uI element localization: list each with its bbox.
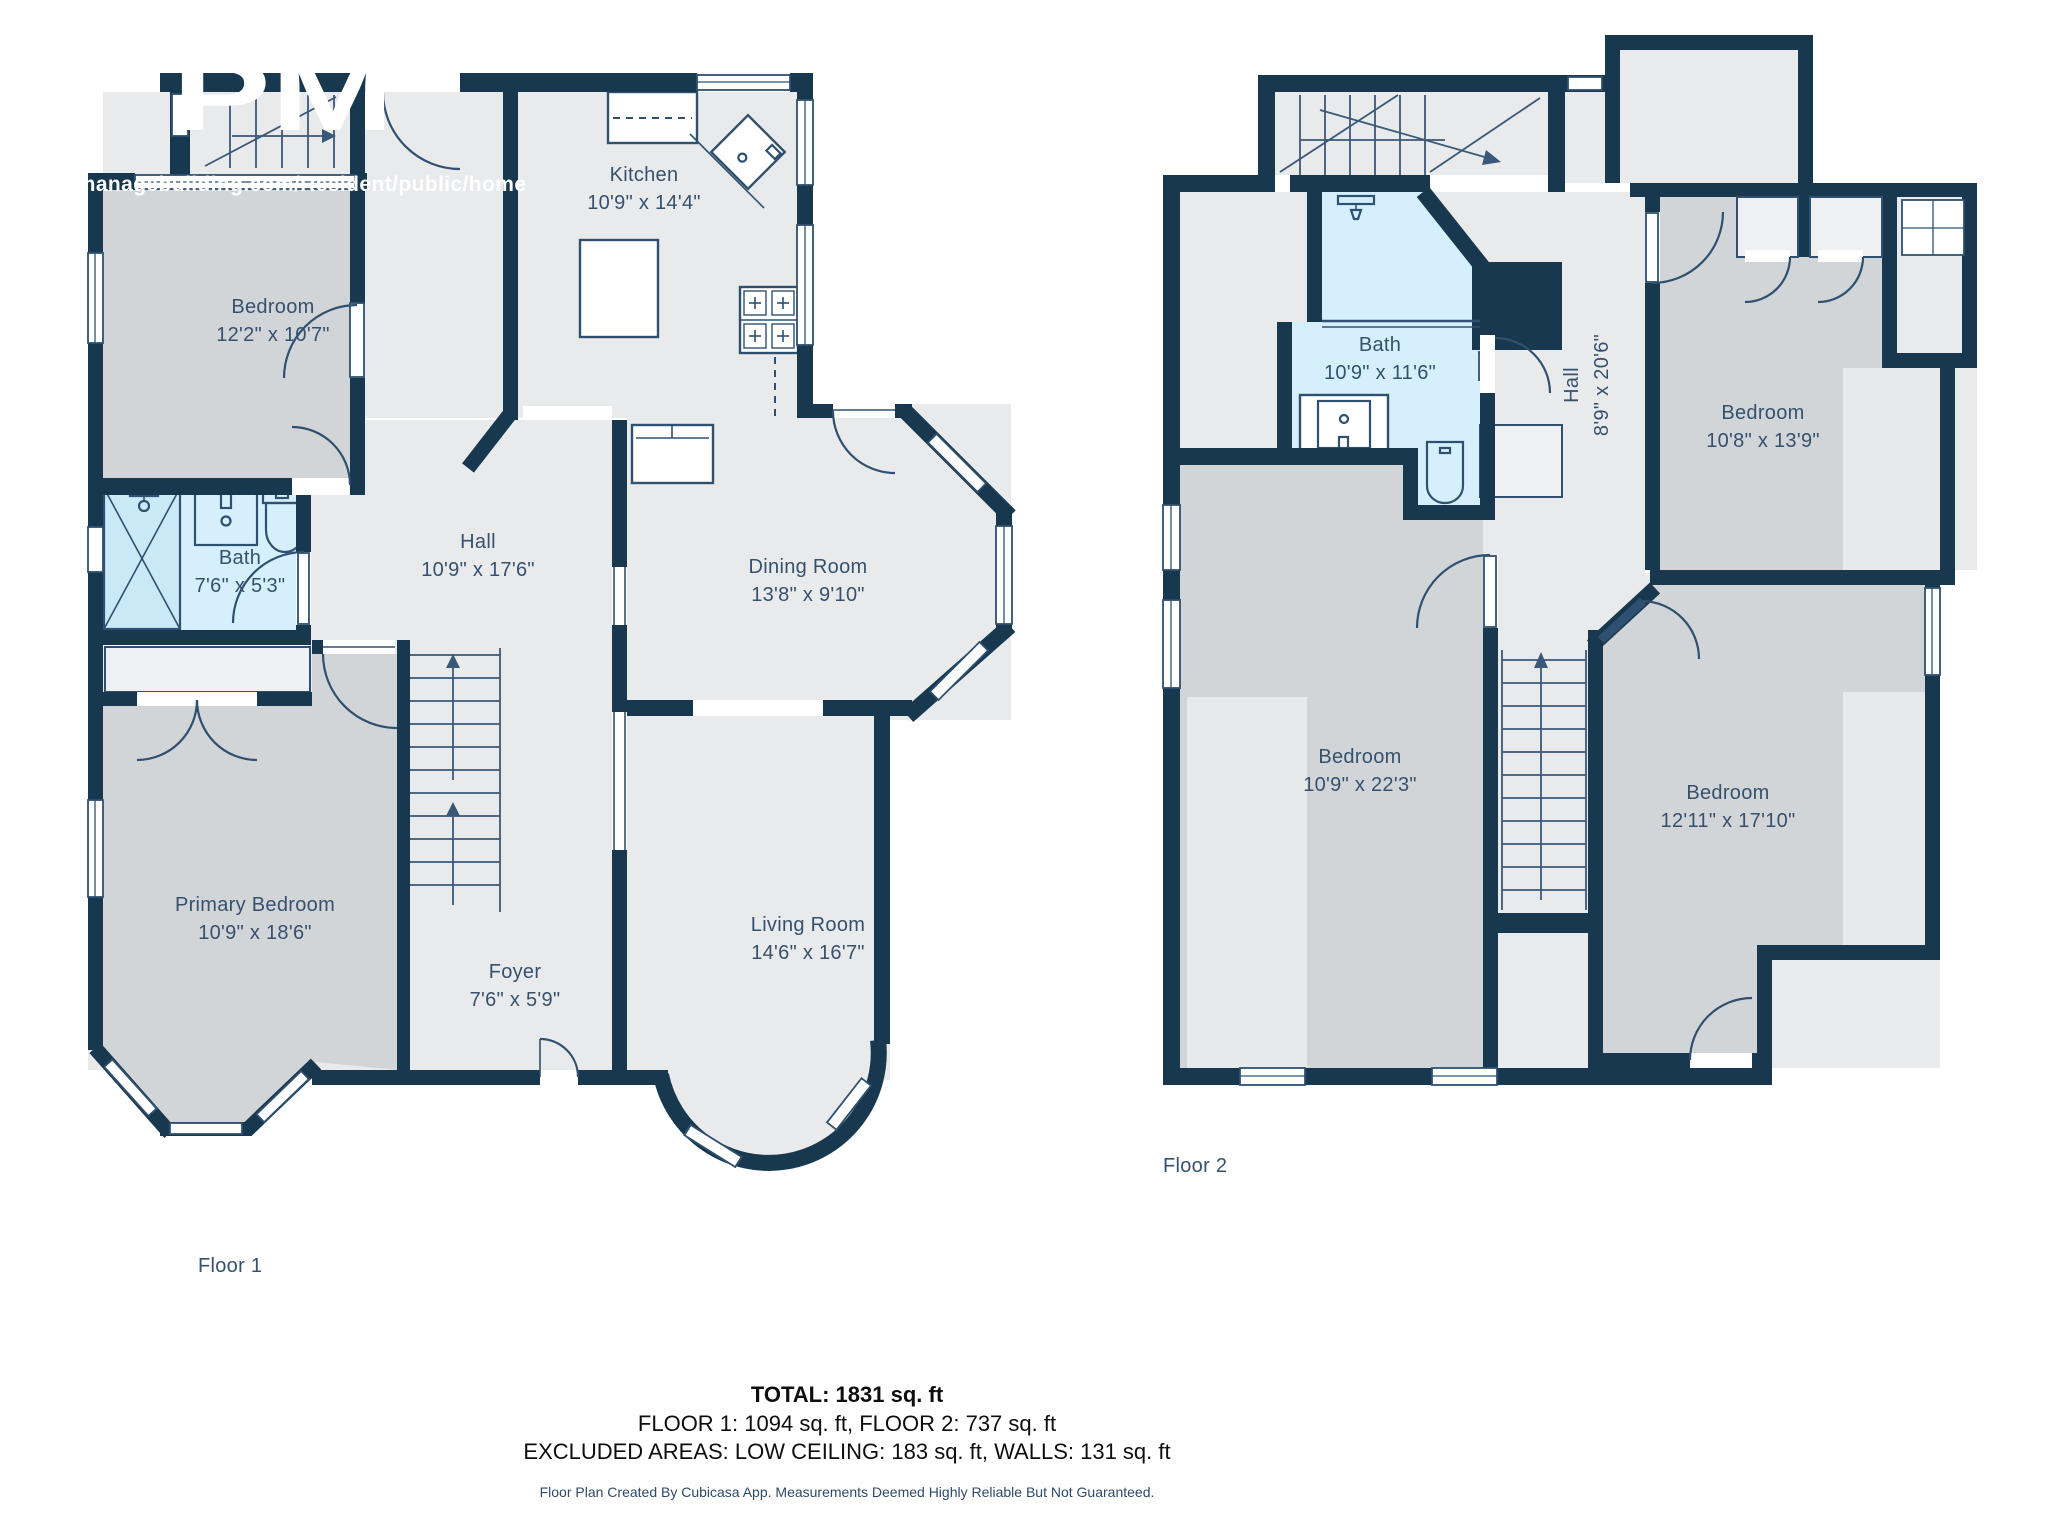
floor2-plan: Bath 10'9" x 11'6" Hall 8'9" x 20'6" Bed… xyxy=(1163,35,1977,1177)
floor1-label: Floor 1 xyxy=(198,1255,262,1277)
floor1-plan: Kitchen 10'9" x 14'4" Bedroom 12'2" x 10… xyxy=(88,73,1012,1277)
room-label-foyer: Foyer xyxy=(489,961,542,983)
room-label-hall2: Hall xyxy=(1561,367,1583,403)
room-label-bath2: Bath xyxy=(1359,334,1401,356)
stove-icon xyxy=(740,287,798,353)
room-label-kitchen: Kitchen xyxy=(610,164,679,186)
room-dims-living: 14'6" x 16'7" xyxy=(751,942,865,964)
room-dims-kitchen: 10'9" x 14'4" xyxy=(587,192,701,214)
room-label-bedroom: Bedroom xyxy=(231,296,314,318)
room-dims-bedroom: 12'2" x 10'7" xyxy=(216,324,330,346)
room-label-living: Living Room xyxy=(751,914,865,936)
watermark-url: perty-managebuilding.com/Resident/public… xyxy=(16,173,526,196)
room-dims-bedroom-br: 12'11" x 17'10" xyxy=(1661,810,1796,832)
room-label-bedroom-br: Bedroom xyxy=(1686,782,1769,804)
floorplan-page: Kitchen 10'9" x 14'4" Bedroom 12'2" x 10… xyxy=(0,0,2048,1536)
room-dims-bath: 7'6" x 5'3" xyxy=(195,575,286,597)
closet-floor1 xyxy=(105,647,310,692)
summary-total: TOTAL: 1831 sq. ft xyxy=(751,1382,944,1407)
kitchen-island xyxy=(580,240,658,337)
watermark-logo: PM xyxy=(172,40,394,152)
room-dims-hall: 10'9" x 17'6" xyxy=(421,559,535,581)
room-label-bath: Bath xyxy=(219,547,261,569)
room-label-primary: Primary Bedroom xyxy=(175,894,335,916)
kitchen-cabinet xyxy=(608,92,697,143)
summary-block: TOTAL: 1831 sq. ft FLOOR 1: 1094 sq. ft,… xyxy=(523,1382,1170,1500)
room-label-bedroom-left: Bedroom xyxy=(1318,746,1401,768)
summary-excluded: EXCLUDED AREAS: LOW CEILING: 183 sq. ft,… xyxy=(523,1439,1170,1464)
room-dims-hall2: 8'9" x 20'6" xyxy=(1591,334,1613,436)
room-dims-bedroom-left: 10'9" x 22'3" xyxy=(1303,774,1417,796)
room-dims-dining: 13'8" x 9'10" xyxy=(751,584,865,606)
room-label-hall: Hall xyxy=(460,531,496,553)
room-dims-primary: 10'9" x 18'6" xyxy=(198,922,312,944)
sink-icon-floor2 xyxy=(1300,395,1388,452)
fridge-icon xyxy=(632,425,713,483)
floor2-label: Floor 2 xyxy=(1163,1155,1227,1177)
room-label-dining: Dining Room xyxy=(749,556,868,578)
floor-plan-canvas: Kitchen 10'9" x 14'4" Bedroom 12'2" x 10… xyxy=(0,0,2048,1536)
room-dims-foyer: 7'6" x 5'9" xyxy=(470,989,561,1011)
window-box-right xyxy=(1902,200,1964,255)
summary-disclaimer: Floor Plan Created By Cubicasa App. Meas… xyxy=(540,1484,1155,1500)
summary-floors: FLOOR 1: 1094 sq. ft, FLOOR 2: 737 sq. f… xyxy=(638,1411,1056,1436)
room-dims-bath2: 10'9" x 11'6" xyxy=(1324,362,1436,384)
room-label-bedroom-tr: Bedroom xyxy=(1721,402,1804,424)
room-dims-bedroom-tr: 10'8" x 13'9" xyxy=(1706,430,1820,452)
